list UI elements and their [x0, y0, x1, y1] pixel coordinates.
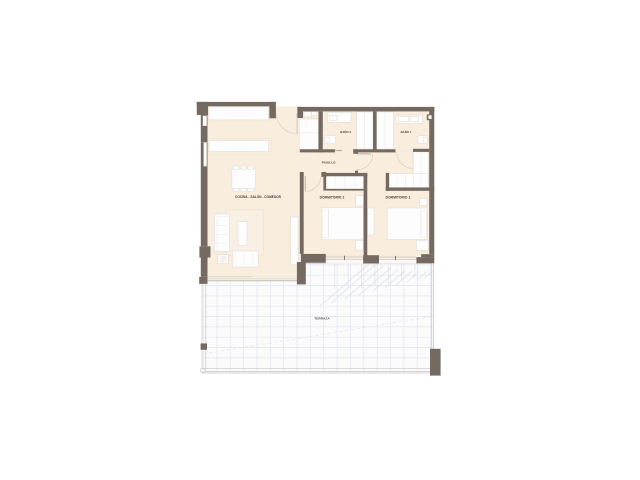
svg-text:DORMITORIO 1: DORMITORIO 1 — [386, 196, 411, 200]
svg-text:PASILLO: PASILLO — [322, 161, 336, 165]
svg-text:BAÑO 1: BAÑO 1 — [401, 129, 412, 134]
svg-text:COCINA - SALÓN - COMEDOR: COCINA - SALÓN - COMEDOR — [235, 194, 282, 199]
svg-text:DORMITORIO 2: DORMITORIO 2 — [320, 196, 345, 200]
svg-text:TERRAZA: TERRAZA — [314, 316, 330, 320]
svg-text:BAÑO 2: BAÑO 2 — [340, 129, 351, 134]
